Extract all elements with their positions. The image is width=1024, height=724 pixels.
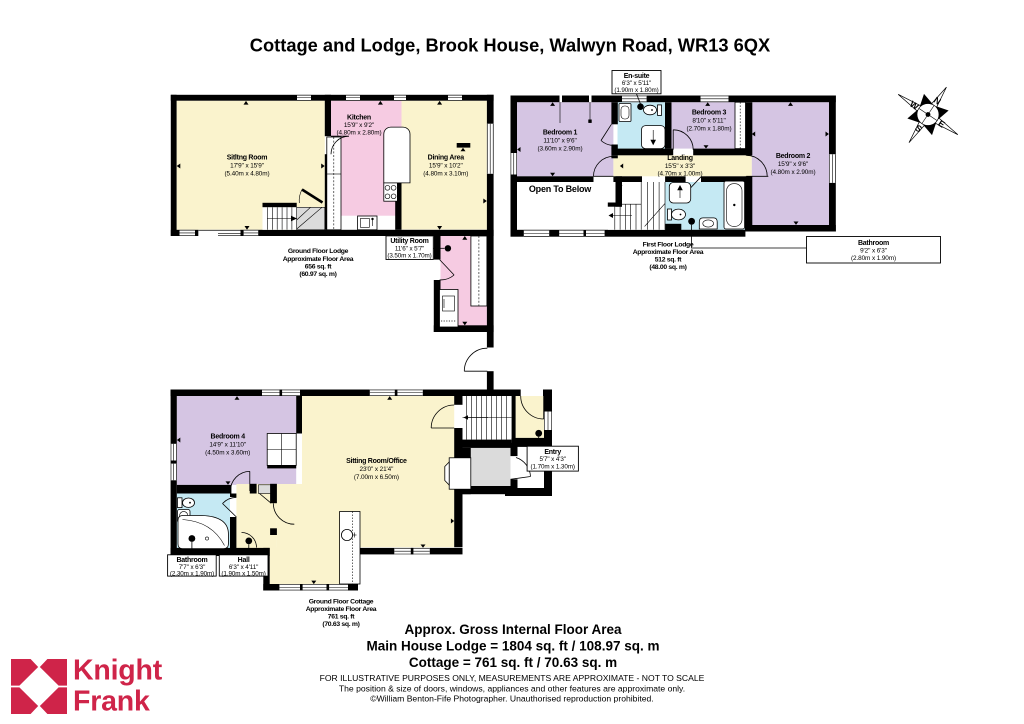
svg-text:656 sq. ft: 656 sq. ft bbox=[305, 264, 333, 271]
svg-text:8'10" x 5'11": 8'10" x 5'11" bbox=[692, 118, 725, 125]
svg-text:Knight: Knight bbox=[73, 655, 163, 687]
svg-text:6'3" x 5'11": 6'3" x 5'11" bbox=[622, 80, 651, 87]
svg-text:Bedroom 4: Bedroom 4 bbox=[211, 434, 246, 441]
svg-text:Cottage and Lodge, Brook House: Cottage and Lodge, Brook House, Walwyn R… bbox=[250, 35, 771, 56]
svg-text:(2.30m x 1.90m): (2.30m x 1.90m) bbox=[170, 570, 214, 577]
svg-text:Open To Below: Open To Below bbox=[529, 184, 592, 194]
svg-text:15'9" x 9'2": 15'9" x 9'2" bbox=[344, 122, 374, 129]
svg-text:(4.70m x 1.00m): (4.70m x 1.00m) bbox=[657, 171, 702, 178]
svg-text:Kitchen: Kitchen bbox=[347, 115, 371, 122]
svg-text:Sitltng Room: Sitltng Room bbox=[227, 155, 268, 162]
svg-text:Ground Floor Cottage: Ground Floor Cottage bbox=[309, 599, 374, 606]
svg-text:(7.00m x 6.50m): (7.00m x 6.50m) bbox=[354, 474, 399, 481]
svg-text:Bedroom 2: Bedroom 2 bbox=[776, 153, 811, 160]
svg-text:14'9" x 11'10": 14'9" x 11'10" bbox=[209, 442, 246, 449]
svg-text:(48.00 sq. m): (48.00 sq. m) bbox=[649, 264, 686, 271]
svg-text:23'0" x 21'4": 23'0" x 21'4" bbox=[360, 466, 394, 473]
svg-text:©William Benton-Fife Photograp: ©William Benton-Fife Photographer. Unaut… bbox=[370, 694, 653, 704]
svg-text:15'5" x 3'3": 15'5" x 3'3" bbox=[665, 163, 695, 170]
svg-text:761 sq. ft: 761 sq. ft bbox=[328, 614, 356, 621]
svg-text:9'2" x 6'3": 9'2" x 6'3" bbox=[860, 247, 887, 254]
svg-text:En-suite: En-suite bbox=[624, 73, 650, 80]
svg-text:FOR ILLUSTRATIVE PURPOSES ONLY: FOR ILLUSTRATIVE PURPOSES ONLY, MEASUREM… bbox=[320, 673, 705, 683]
svg-text:(5.40m x 4.80m): (5.40m x 4.80m) bbox=[224, 171, 269, 178]
svg-text:17'9" x 15'9": 17'9" x 15'9" bbox=[230, 163, 264, 170]
svg-text:(3.60m x 2.90m): (3.60m x 2.90m) bbox=[537, 146, 582, 153]
svg-text:Sitting Room/Office: Sitting Room/Office bbox=[346, 458, 407, 465]
svg-text:512 sq. ft: 512 sq. ft bbox=[655, 257, 683, 264]
svg-text:(4.80m x 2.80m): (4.80m x 2.80m) bbox=[336, 130, 381, 137]
svg-text:(3.50m x 1.70m): (3.50m x 1.70m) bbox=[387, 253, 431, 260]
svg-text:15'9" x 10'2": 15'9" x 10'2" bbox=[429, 163, 463, 170]
svg-text:Dining Area: Dining Area bbox=[428, 155, 465, 162]
svg-text:(2.80m x 1.90m): (2.80m x 1.90m) bbox=[851, 255, 896, 262]
svg-text:Entry: Entry bbox=[544, 449, 561, 456]
svg-text:(1.90m x 1.80m): (1.90m x 1.80m) bbox=[614, 87, 658, 94]
svg-text:Bedroom 3: Bedroom 3 bbox=[692, 110, 727, 117]
svg-text:Cottage = 761 sq. ft / 70.63 s: Cottage = 761 sq. ft / 70.63 sq. m bbox=[409, 655, 617, 670]
svg-text:(4.80m x 3.10m): (4.80m x 3.10m) bbox=[423, 171, 468, 178]
svg-text:Bedroom 1: Bedroom 1 bbox=[543, 130, 578, 137]
svg-text:Approximate Floor Area: Approximate Floor Area bbox=[633, 249, 704, 256]
svg-text:Utility Room: Utility Room bbox=[390, 238, 428, 245]
svg-text:Frank: Frank bbox=[73, 686, 150, 718]
svg-text:11'10" x 9'6": 11'10" x 9'6" bbox=[543, 138, 576, 145]
svg-text:The position & size of doors,: The position & size of doors, windows, a… bbox=[339, 684, 685, 694]
svg-text:(4.50m x 3.60m): (4.50m x 3.60m) bbox=[205, 450, 250, 457]
svg-text:(70.63 sq. m): (70.63 sq. m) bbox=[322, 621, 359, 628]
svg-text:Bathroom: Bathroom bbox=[176, 557, 207, 564]
svg-text:Approx. Gross Internal Floor A: Approx. Gross Internal Floor Area bbox=[404, 622, 622, 637]
svg-text:(1.70m x 1.30m): (1.70m x 1.30m) bbox=[531, 464, 575, 471]
svg-text:Bathroom: Bathroom bbox=[858, 240, 889, 247]
svg-text:(2.70m x 1.80m): (2.70m x 1.80m) bbox=[686, 126, 731, 133]
svg-text:Ground Floor Lodge: Ground Floor Lodge bbox=[288, 248, 349, 255]
svg-text:11'6" x 5'7": 11'6" x 5'7" bbox=[395, 245, 424, 252]
svg-text:Landing: Landing bbox=[667, 155, 692, 162]
svg-text:Approximate Floor Area: Approximate Floor Area bbox=[306, 606, 377, 613]
svg-text:Approximate Floor Area: Approximate Floor Area bbox=[283, 256, 354, 263]
svg-text:(1.90m x 1.50m): (1.90m x 1.50m) bbox=[221, 570, 265, 577]
svg-text:(60.97 sq. m): (60.97 sq. m) bbox=[299, 271, 336, 278]
svg-text:(4.80m x 2.90m): (4.80m x 2.90m) bbox=[770, 169, 815, 176]
svg-text:15'9" x 9'6": 15'9" x 9'6" bbox=[778, 161, 808, 168]
svg-text:5'7" x 4'3": 5'7" x 4'3" bbox=[539, 456, 565, 463]
svg-text:Main House Lodge = 1804 sq. ft: Main House Lodge = 1804 sq. ft / 108.97 … bbox=[367, 639, 660, 654]
svg-text:First Floor Lodge: First Floor Lodge bbox=[643, 242, 694, 249]
svg-text:Hall: Hall bbox=[238, 557, 250, 564]
